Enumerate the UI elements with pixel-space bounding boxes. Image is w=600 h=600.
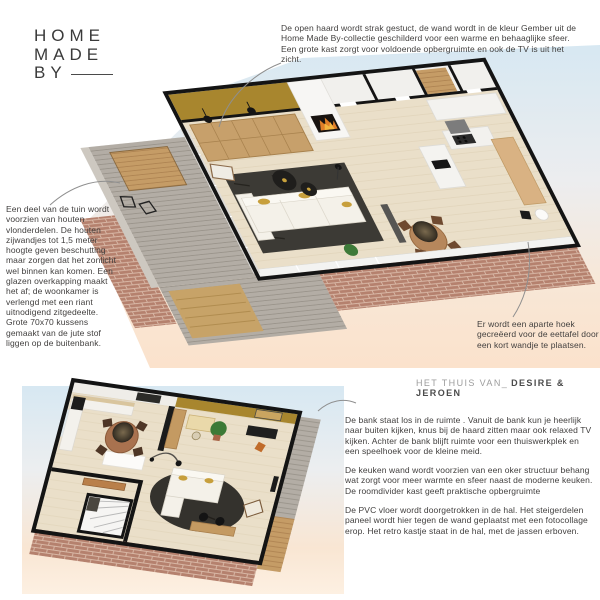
caption: HET THUIS VAN_DESIRE & JEROEN xyxy=(416,378,600,398)
note-fireplace: De open haard wordt strak gestuct, de wa… xyxy=(281,23,579,64)
armchair xyxy=(210,164,234,181)
logo-line-3: BY xyxy=(34,64,113,83)
note-sofa: De bank staat los in de ruimte . Vanuit … xyxy=(345,415,595,456)
logo: HOME MADE BY xyxy=(34,27,113,83)
logo-underscore xyxy=(71,74,113,75)
note-hall: De PVC vloer wordt doorgetrokken in de h… xyxy=(345,505,595,536)
note-dining: Er wordt een aparte hoek gecreëerd voor … xyxy=(477,319,599,350)
logo-line-2: MADE xyxy=(34,46,113,65)
floorplan-bottom xyxy=(26,380,322,589)
presentation-page: HOME MADE BY De open haard wordt strak g… xyxy=(0,0,600,600)
note-garden: Een deel van de tuin wordt voorzien van … xyxy=(6,204,118,348)
caption-prefix: HET THUIS VAN_ xyxy=(416,378,508,388)
note-kitchen: De keuken wand wordt voorzien van een ok… xyxy=(345,465,595,496)
notes-bottom: De bank staat los in de ruimte . Vanuit … xyxy=(345,415,595,545)
logo-line-1: HOME xyxy=(34,27,113,46)
